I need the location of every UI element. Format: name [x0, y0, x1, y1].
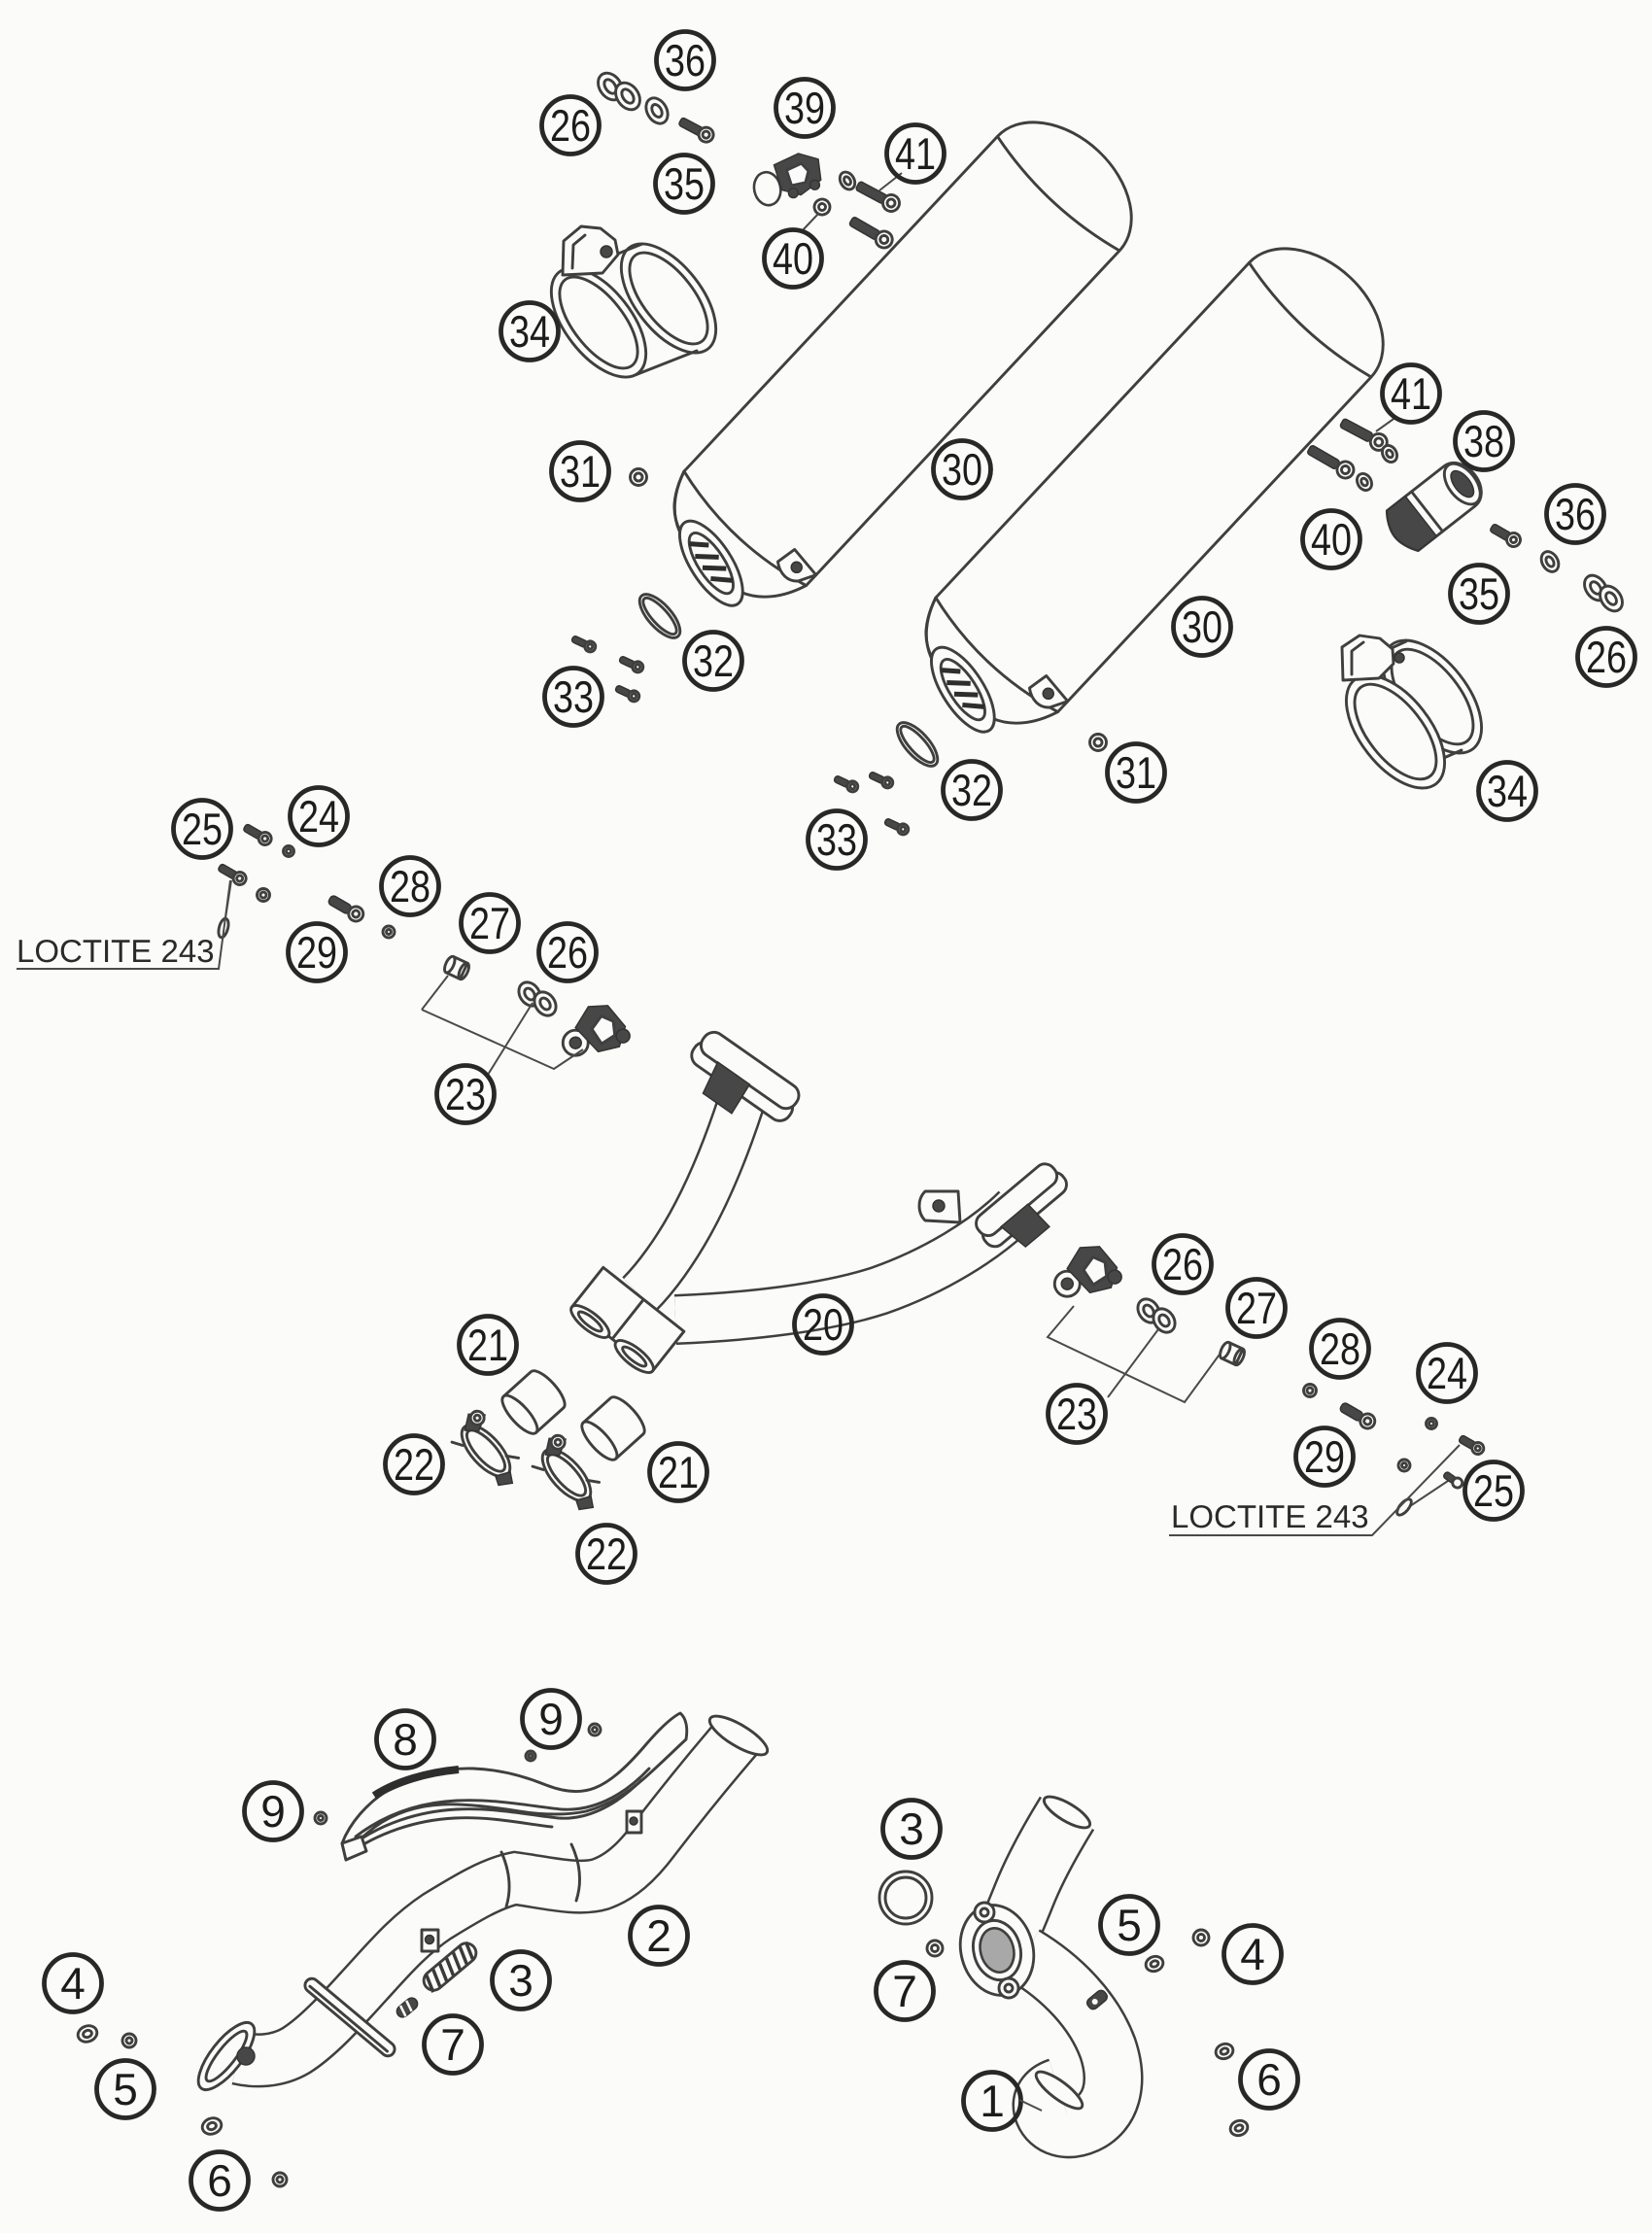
svg-text:4: 4: [60, 1958, 86, 2009]
svg-text:21: 21: [467, 1320, 508, 1370]
svg-text:LOCTITE 243: LOCTITE 243: [1171, 1498, 1369, 1534]
svg-text:32: 32: [693, 636, 734, 686]
svg-text:29: 29: [1304, 1431, 1345, 1482]
svg-text:22: 22: [586, 1529, 627, 1579]
svg-text:3: 3: [899, 1804, 924, 1854]
svg-text:39: 39: [784, 83, 825, 133]
svg-text:28: 28: [390, 861, 430, 911]
svg-text:32: 32: [951, 765, 992, 815]
svg-text:34: 34: [1487, 766, 1528, 816]
svg-text:3: 3: [508, 1955, 533, 2006]
svg-text:26: 26: [1586, 632, 1627, 682]
svg-text:41: 41: [1391, 368, 1431, 419]
svg-text:8: 8: [393, 1714, 418, 1765]
svg-text:2: 2: [646, 1910, 671, 1961]
svg-text:35: 35: [664, 158, 705, 209]
svg-text:33: 33: [553, 671, 594, 722]
svg-text:7: 7: [440, 2019, 465, 2070]
svg-text:22: 22: [394, 1439, 434, 1490]
svg-text:40: 40: [773, 233, 813, 284]
svg-text:36: 36: [1555, 489, 1596, 539]
svg-text:34: 34: [509, 306, 550, 357]
svg-text:9: 9: [260, 1786, 286, 1837]
svg-text:6: 6: [207, 2155, 232, 2206]
svg-text:25: 25: [182, 804, 223, 854]
svg-text:1: 1: [980, 2076, 1005, 2126]
svg-text:4: 4: [1240, 1929, 1265, 1979]
svg-text:29: 29: [296, 927, 337, 978]
svg-text:27: 27: [469, 898, 510, 948]
svg-text:30: 30: [942, 444, 982, 495]
svg-text:6: 6: [1256, 2054, 1282, 2105]
svg-text:38: 38: [1463, 416, 1504, 466]
svg-text:26: 26: [1162, 1239, 1203, 1289]
svg-text:28: 28: [1320, 1323, 1360, 1374]
svg-text:30: 30: [1182, 601, 1222, 652]
svg-text:21: 21: [658, 1447, 699, 1497]
svg-text:23: 23: [1056, 1389, 1097, 1439]
svg-text:36: 36: [665, 35, 706, 86]
svg-text:24: 24: [1427, 1348, 1467, 1398]
svg-text:20: 20: [803, 1299, 843, 1350]
svg-text:31: 31: [560, 446, 601, 497]
svg-text:5: 5: [1117, 1900, 1142, 1950]
svg-text:41: 41: [895, 128, 936, 179]
svg-text:26: 26: [550, 100, 591, 151]
svg-text:LOCTITE 243: LOCTITE 243: [17, 933, 215, 969]
svg-text:35: 35: [1459, 568, 1499, 619]
svg-text:27: 27: [1236, 1283, 1277, 1333]
svg-text:40: 40: [1311, 514, 1352, 565]
svg-text:31: 31: [1116, 747, 1156, 798]
svg-text:7: 7: [892, 1966, 917, 2016]
svg-text:25: 25: [1473, 1465, 1514, 1516]
svg-text:9: 9: [538, 1694, 564, 1744]
svg-text:26: 26: [547, 927, 588, 978]
svg-text:24: 24: [298, 791, 339, 842]
svg-text:23: 23: [445, 1069, 486, 1119]
svg-text:33: 33: [816, 814, 857, 865]
svg-text:5: 5: [113, 2064, 138, 2114]
